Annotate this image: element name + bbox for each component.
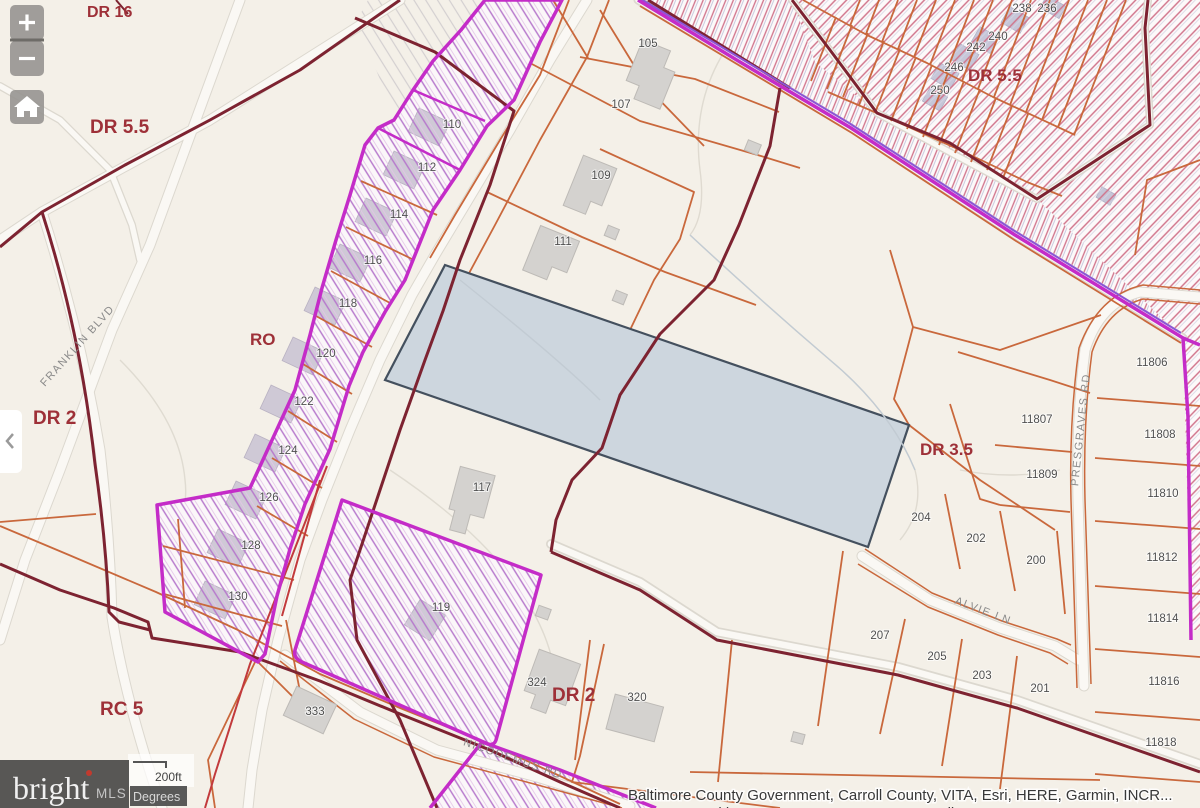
svg-text:105: 105	[638, 38, 657, 50]
svg-text:118: 118	[339, 298, 357, 310]
svg-text:120: 120	[316, 348, 335, 360]
svg-text:11807: 11807	[1021, 414, 1052, 426]
svg-text:Baltimore County Government, C: Baltimore County Government, Carroll Cou…	[628, 787, 1173, 804]
svg-text:Degrees: Degrees	[133, 790, 180, 804]
svg-text:205: 205	[927, 651, 946, 663]
svg-text:250: 250	[930, 85, 949, 97]
svg-text:DR 2: DR 2	[552, 685, 595, 706]
svg-text:11808: 11808	[1144, 429, 1175, 441]
svg-text:bright: bright	[13, 770, 90, 806]
svg-text:201: 201	[1030, 683, 1049, 695]
svg-text:RC 5: RC 5	[100, 699, 144, 720]
svg-text:114: 114	[390, 209, 409, 221]
svg-text:242: 242	[966, 42, 985, 54]
svg-text:202: 202	[966, 533, 985, 545]
svg-text:DR 3.5: DR 3.5	[920, 440, 973, 459]
svg-text:11814: 11814	[1147, 613, 1179, 625]
svg-text:116: 116	[364, 255, 382, 267]
svg-text:207: 207	[870, 630, 889, 642]
svg-text:333: 333	[305, 706, 324, 718]
svg-text:203: 203	[972, 670, 991, 682]
svg-text:204: 204	[911, 512, 931, 524]
svg-text:111: 111	[554, 236, 571, 248]
svg-text:110: 110	[443, 119, 461, 131]
svg-text:126: 126	[259, 492, 278, 504]
svg-text:11810: 11810	[1147, 488, 1178, 500]
svg-text:11818: 11818	[1145, 737, 1176, 749]
svg-text:RO: RO	[250, 330, 276, 349]
svg-text:11806: 11806	[1136, 357, 1167, 369]
svg-text:11812: 11812	[1146, 552, 1177, 564]
svg-text:DR 5.5: DR 5.5	[90, 117, 150, 138]
svg-text:117: 117	[473, 482, 491, 494]
svg-text:124: 124	[278, 445, 298, 457]
svg-text:122: 122	[294, 396, 313, 408]
svg-text:236: 236	[1037, 3, 1056, 15]
svg-text:240: 240	[988, 31, 1007, 43]
svg-text:200: 200	[1026, 555, 1045, 567]
svg-text:11809: 11809	[1026, 469, 1057, 481]
svg-text:324: 324	[527, 677, 547, 689]
svg-text:DR 5:5: DR 5:5	[968, 66, 1022, 85]
svg-text:112: 112	[418, 162, 436, 174]
svg-text:119: 119	[432, 602, 450, 614]
svg-text:130: 130	[228, 591, 247, 603]
svg-text:107: 107	[611, 99, 630, 111]
svg-text:200ft: 200ft	[155, 770, 182, 784]
svg-text:DR 16: DR 16	[87, 4, 132, 21]
svg-text:DR 2: DR 2	[33, 408, 76, 429]
svg-text:109: 109	[591, 170, 610, 182]
svg-text:MLS: MLS	[96, 786, 127, 801]
svg-text:320: 320	[627, 692, 646, 704]
svg-text:11816: 11816	[1148, 676, 1179, 688]
svg-text:128: 128	[241, 540, 260, 552]
svg-text:246: 246	[944, 62, 963, 74]
svg-text:238: 238	[1012, 3, 1031, 15]
